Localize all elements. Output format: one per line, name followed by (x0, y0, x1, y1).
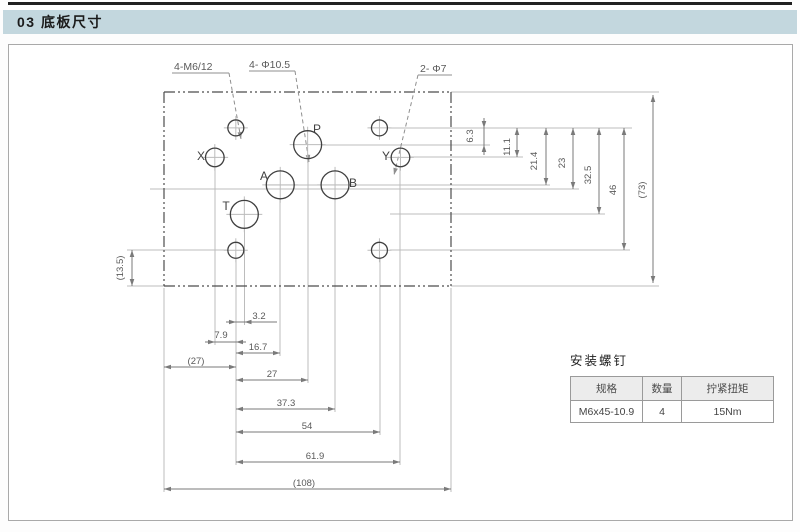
dimension-arrow (236, 430, 243, 435)
table-header-row: 规格 数量 拧紧扭矩 (571, 377, 774, 401)
dimension-arrow (164, 365, 171, 370)
dimension-label: (73) (637, 182, 648, 199)
dimension-arrow (571, 182, 576, 189)
col-header-torque: 拧紧扭矩 (682, 377, 774, 401)
dimension-arrow (597, 128, 602, 135)
col-header-qty: 数量 (643, 377, 682, 401)
dimension-label: 54 (302, 421, 313, 432)
callout-label: 4- Φ10.5 (249, 59, 290, 71)
dimension-arrow (544, 128, 549, 135)
port-label-Y: Y (382, 149, 390, 163)
section-header: 03 底板尺寸 (3, 10, 797, 34)
dimension-arrow (130, 279, 135, 286)
dimension-arrow (393, 168, 397, 175)
dimension-arrow (651, 276, 656, 283)
dimension-arrow (515, 150, 520, 157)
port-label-T: T (222, 199, 230, 213)
callout-leader (295, 71, 309, 162)
dimension-label: 7.9 (214, 330, 227, 341)
cell-qty: 4 (643, 401, 682, 423)
dimension-label: 3.2 (252, 311, 265, 322)
dimension-arrow (597, 207, 602, 214)
port-label-P: P (313, 122, 321, 136)
dimension-label: 6.3 (465, 129, 476, 142)
mounting-screws-title: 安装螺钉 (570, 350, 782, 369)
dimension-arrow (651, 95, 656, 102)
cell-torque: 15Nm (682, 401, 774, 423)
dimension-label: (13.5) (115, 256, 126, 281)
callout-leader (394, 75, 418, 175)
cell-spec: M6x45-10.9 (571, 401, 643, 423)
dimension-arrow (236, 407, 243, 412)
dimension-arrow (544, 178, 549, 185)
table-row: M6x45-10.9 4 15Nm (571, 401, 774, 423)
port-label-A: A (260, 169, 268, 183)
dimension-arrow (229, 365, 236, 370)
dimension-arrow (130, 250, 135, 257)
dimension-label: 46 (608, 185, 619, 196)
dimension-arrow (622, 128, 627, 135)
dimension-arrow (301, 378, 308, 383)
dimension-arrow (236, 351, 243, 356)
dimension-arrow (444, 487, 451, 492)
dimension-arrow (622, 243, 627, 250)
port-label-B: B (349, 176, 357, 190)
dimension-arrow (373, 430, 380, 435)
callout-label: 2- Φ7 (420, 63, 447, 75)
dimension-label: 61.9 (306, 451, 325, 462)
dimension-arrow (328, 407, 335, 412)
dimension-arrow (236, 460, 243, 465)
dimension-label: (108) (293, 478, 315, 489)
dimension-label: 11.1 (502, 138, 513, 156)
dimension-label: 23 (557, 158, 568, 169)
dimension-label: 27 (267, 369, 278, 380)
dimension-arrow (273, 351, 280, 356)
dimension-label: 37.3 (277, 398, 296, 409)
catalog-page: 03 底板尺寸 6.311.121.42332.546(73)(13.5)3.2… (0, 0, 800, 532)
mounting-screws-table: 规格 数量 拧紧扭矩 M6x45-10.9 4 15Nm (570, 376, 774, 423)
dimension-arrow (515, 128, 520, 135)
dimension-label: 32.5 (583, 166, 594, 185)
dimension-arrow (571, 128, 576, 135)
dimension-arrow (236, 378, 243, 383)
section-title: 03 底板尺寸 (17, 12, 103, 32)
dimension-label: (27) (188, 356, 205, 367)
dimension-arrow (164, 487, 171, 492)
port-label-X: X (197, 149, 205, 163)
col-header-spec: 规格 (571, 377, 643, 401)
mounting-screws-panel: 安装螺钉 规格 数量 拧紧扭矩 M6x45-10.9 4 15Nm (570, 350, 782, 423)
callout-leader (229, 73, 241, 139)
base-plate-dimension-drawing: 6.311.121.42332.546(73)(13.5)3.27.916.7(… (0, 0, 800, 532)
callout-label: 4-M6/12 (174, 61, 213, 73)
dimension-label: 21.4 (529, 152, 540, 171)
dimension-arrow (393, 460, 400, 465)
dimension-label: 16.7 (249, 342, 268, 353)
